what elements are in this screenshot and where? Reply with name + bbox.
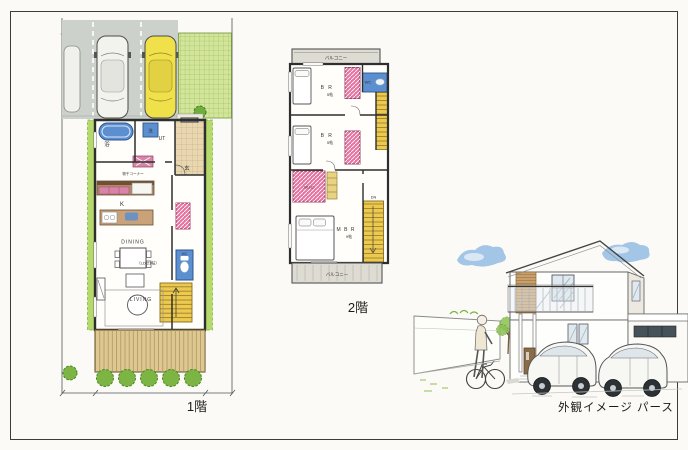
bed-single-2 (293, 126, 311, 164)
deck-garden (63, 330, 205, 387)
exterior-perspective (412, 228, 688, 400)
balcony-top-label: バルコニー (325, 56, 348, 61)
closet-2 (345, 131, 360, 164)
house-1f: 洗 (88, 114, 213, 331)
wic-closet: W.I.C (293, 171, 325, 202)
utility-label: UT (159, 136, 166, 142)
lawn-grid (179, 33, 232, 118)
sink-icon (125, 213, 138, 221)
floor2-plan: バルコニー WC W.I. (283, 40, 395, 295)
bath-label: 浴 (104, 140, 110, 148)
person-head (477, 315, 487, 325)
wc-label-1f: WC (182, 252, 188, 256)
person-body (475, 326, 487, 350)
window-side (632, 281, 640, 301)
entrance-label: 玄 (184, 164, 190, 172)
laundry-label: 洗 (148, 128, 153, 135)
drying-corner-label: 物干コーナー (122, 171, 144, 176)
neighbor-car-partial (64, 46, 80, 112)
stairs-upper (376, 93, 388, 150)
master-label: M B R (337, 227, 356, 233)
stairs-lower: DN (364, 196, 384, 263)
kitchen-counter (97, 181, 154, 195)
bedroom1-size: 5帖 (327, 91, 333, 97)
bedroom1-label: B R (321, 85, 334, 91)
balcony-bottom-label: バルコニー (326, 272, 349, 277)
white-car-topview (94, 36, 131, 118)
bathtub-icon (99, 123, 133, 140)
parking-area (62, 20, 232, 119)
bed-single-1 (293, 68, 311, 104)
toilet-tank (181, 256, 189, 261)
ld-size-label: （LD 21帖） (137, 260, 160, 266)
balcony-glass (508, 285, 593, 312)
bedroom2-label: B R (321, 133, 334, 139)
balcony-top: バルコニー (292, 49, 380, 64)
stairs-1f (160, 283, 192, 322)
wc-label-2f: WC (365, 80, 372, 85)
kitchen-island (100, 210, 153, 225)
bedroom2-size: 5帖 (327, 139, 333, 145)
dining-label: DINING (121, 240, 145, 246)
wic-label: W.I.C (304, 185, 314, 190)
perspective-caption: 外観イメージ パース (540, 399, 688, 415)
down-label: DN (371, 196, 377, 200)
floor2-caption: 2階 (328, 297, 388, 316)
pantry-icon (176, 203, 190, 229)
balcony-bottom: バルコニー (292, 263, 382, 283)
clouds (457, 242, 650, 267)
floorplan-sheet: 洗 (0, 0, 688, 450)
floor1-caption: 1階 (167, 396, 227, 415)
garage-window-band (634, 326, 676, 337)
yellow-car-topview (142, 36, 179, 118)
kitchen-label: K (120, 202, 124, 208)
washer-icon: 洗 (143, 123, 158, 137)
shelf-strip (327, 172, 337, 199)
bed-double (296, 216, 334, 260)
wc-room-2f: WC (363, 73, 388, 92)
floor1-plan: 洗 (60, 12, 240, 412)
toilet-bowl (180, 262, 188, 273)
living-label: LIVING (130, 297, 152, 303)
master-size: 9帖 (346, 233, 352, 239)
closet-1 (345, 68, 360, 99)
wc-room-1f: WC (176, 250, 193, 280)
